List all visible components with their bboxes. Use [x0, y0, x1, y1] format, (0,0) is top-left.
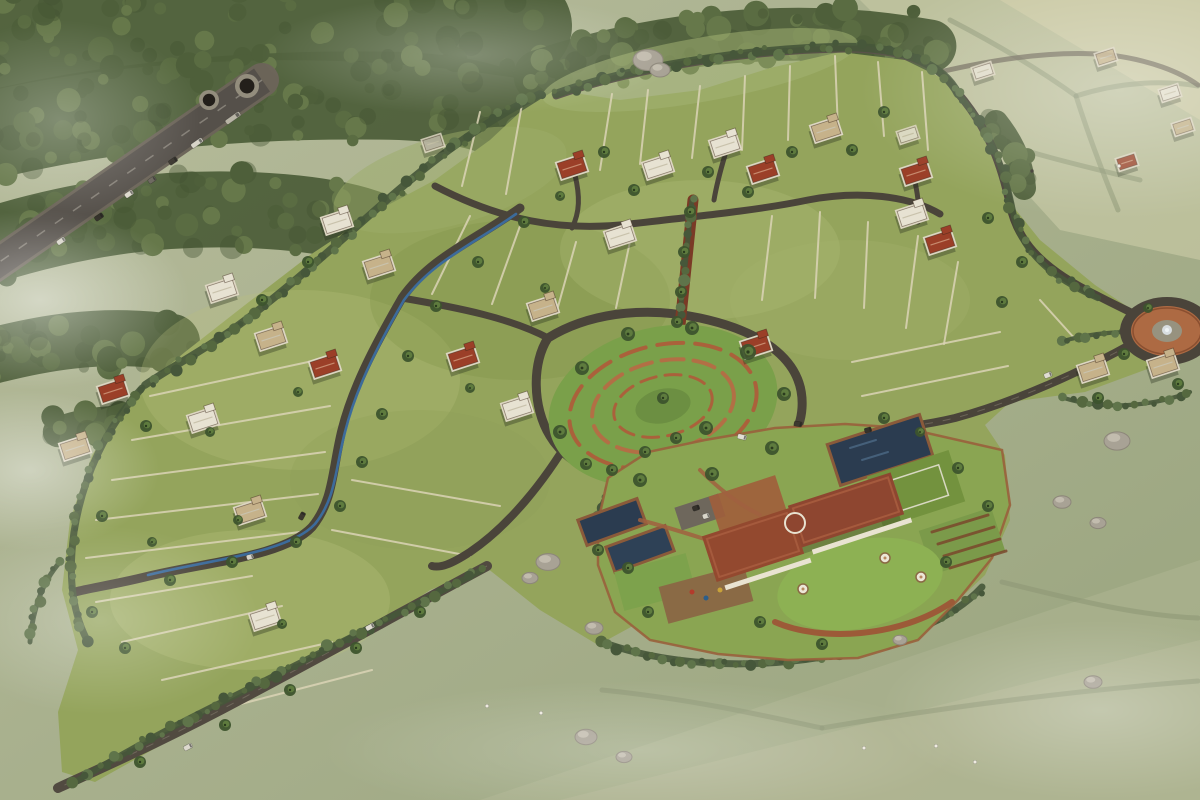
- palm-tree: [284, 684, 296, 696]
- palm-tree: [777, 387, 791, 401]
- palm-tree: [622, 562, 634, 574]
- rock-cluster: [1090, 517, 1106, 528]
- palm-tree: [765, 441, 779, 455]
- palm-tree: [350, 642, 362, 654]
- palm-tree: [205, 427, 215, 437]
- palm-tree: [754, 616, 766, 628]
- aerial-masterplan-render: [0, 0, 1200, 800]
- palm-tree: [376, 408, 388, 420]
- palm-tree: [699, 421, 713, 435]
- gazebo: [916, 572, 926, 582]
- palm-tree: [702, 166, 714, 178]
- palm-tree: [678, 246, 690, 258]
- tunnel-portal: [199, 90, 219, 110]
- palm-tree: [356, 456, 368, 468]
- palm-tree: [1172, 378, 1184, 390]
- palm-tree: [915, 427, 925, 437]
- palm-tree: [982, 500, 994, 512]
- palm-tree: [277, 619, 287, 629]
- palm-tree: [705, 467, 719, 481]
- palm-tree: [952, 462, 964, 474]
- palm-tree: [580, 458, 592, 470]
- palm-tree: [472, 256, 484, 268]
- palm-tree: [293, 387, 303, 397]
- rock-cluster: [536, 554, 560, 571]
- palm-tree: [334, 500, 346, 512]
- palm-tree: [786, 146, 798, 158]
- palm-tree: [621, 327, 635, 341]
- palm-tree: [675, 286, 687, 298]
- palm-tree: [219, 719, 231, 731]
- palm-tree: [553, 425, 567, 439]
- palm-tree: [233, 515, 243, 525]
- palm-tree: [518, 216, 530, 228]
- gazebo: [880, 553, 890, 563]
- palm-tree: [639, 446, 651, 458]
- vehicle: [794, 421, 803, 427]
- palm-tree: [134, 756, 146, 768]
- palm-tree: [742, 186, 754, 198]
- palm-tree: [740, 344, 756, 360]
- palm-tree: [414, 606, 426, 618]
- palm-tree: [1143, 303, 1153, 313]
- rock-cluster: [1053, 496, 1071, 509]
- palm-tree: [628, 184, 640, 196]
- palm-tree: [816, 638, 828, 650]
- palm-tree: [598, 146, 610, 158]
- palm-tree: [256, 294, 268, 306]
- palm-tree: [684, 206, 696, 218]
- palm-tree: [671, 316, 683, 328]
- palm-tree: [606, 464, 618, 476]
- palm-tree: [592, 544, 604, 556]
- palm-tree: [430, 300, 442, 312]
- palm-tree: [555, 191, 565, 201]
- palm-tree: [996, 296, 1008, 308]
- rock-cluster: [522, 572, 538, 583]
- palm-tree: [540, 283, 550, 293]
- masterplan-scene-canvas: [0, 0, 1200, 800]
- palm-tree: [670, 432, 682, 444]
- palm-tree: [1016, 256, 1028, 268]
- palm-tree: [302, 256, 314, 268]
- palm-tree: [940, 556, 952, 568]
- rock-cluster: [585, 622, 603, 635]
- palm-tree: [575, 361, 589, 375]
- palm-tree: [465, 383, 475, 393]
- palm-tree: [846, 144, 858, 156]
- palm-tree: [290, 536, 302, 548]
- rock-cluster: [893, 635, 907, 645]
- palm-tree: [685, 321, 699, 335]
- palm-tree: [878, 412, 890, 424]
- tunnel-portal: [235, 74, 259, 98]
- rock-cluster: [1104, 432, 1130, 450]
- palm-tree: [657, 392, 669, 404]
- palm-tree: [633, 473, 647, 487]
- palm-tree: [642, 606, 654, 618]
- palm-tree: [1092, 392, 1104, 404]
- palm-tree: [1118, 348, 1130, 360]
- gazebo: [798, 584, 808, 594]
- palm-tree: [402, 350, 414, 362]
- palm-tree: [982, 212, 994, 224]
